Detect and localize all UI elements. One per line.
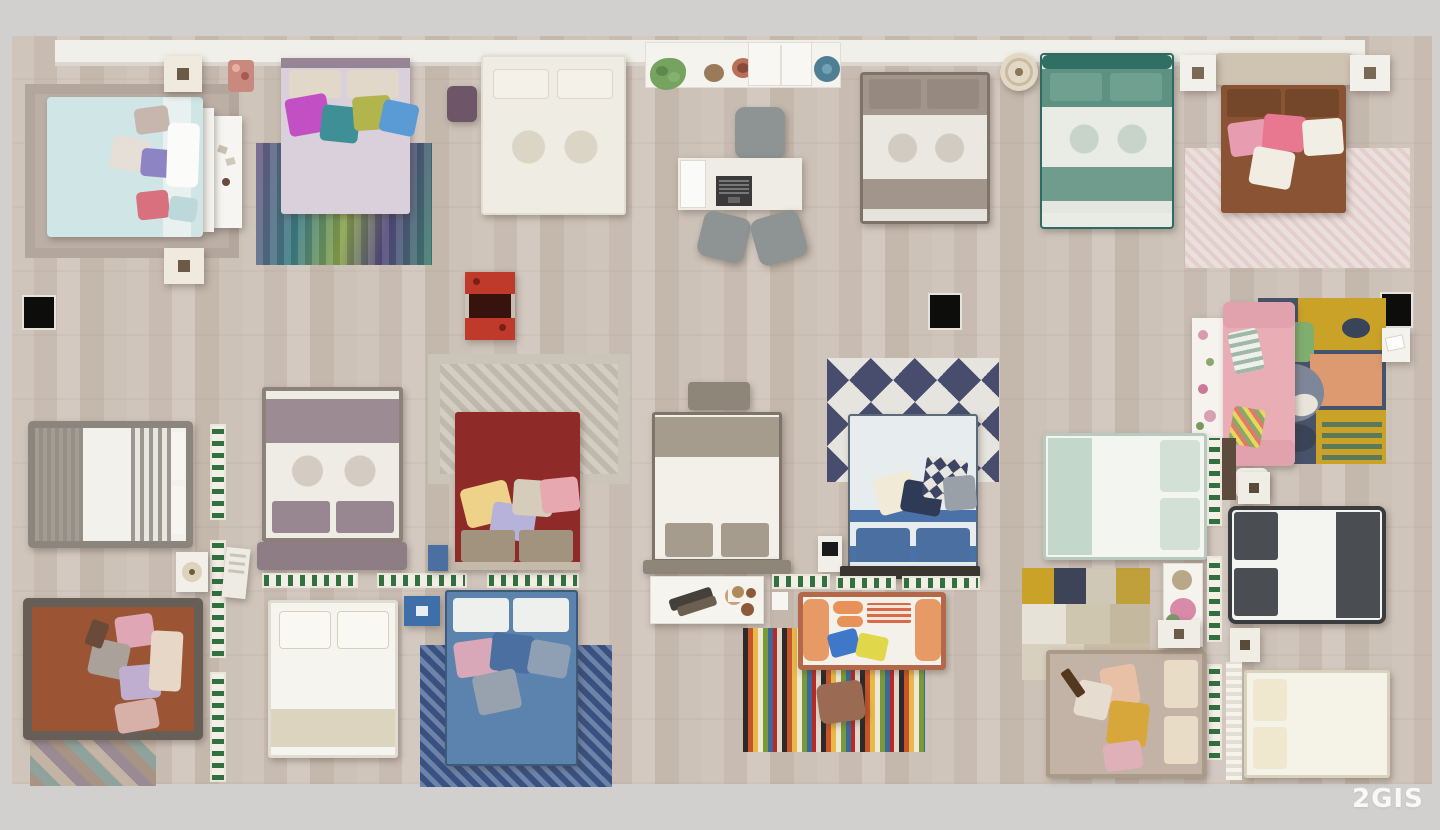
fold <box>131 428 171 541</box>
pillow <box>855 632 889 662</box>
flower <box>1204 410 1216 422</box>
wood-strip <box>1222 438 1236 500</box>
planter-strip-h <box>487 573 579 588</box>
headboard-strip <box>281 58 410 68</box>
pillow <box>1253 679 1287 721</box>
duvet-pattern <box>1050 111 1164 167</box>
planter-strip-h <box>772 574 830 589</box>
headboard-tufted <box>688 382 750 410</box>
bed-cream-corner <box>1244 670 1390 778</box>
patch <box>1116 568 1150 604</box>
pillow <box>1285 89 1339 117</box>
patch <box>1110 604 1150 644</box>
knob <box>1249 483 1259 493</box>
slat <box>228 569 244 574</box>
nightstand <box>164 248 204 284</box>
pillow <box>453 598 509 632</box>
nightstand <box>1350 55 1390 91</box>
pillow <box>519 530 573 562</box>
bed-mauve <box>262 387 403 542</box>
pillow <box>378 99 420 138</box>
cushion-roll <box>837 616 863 627</box>
nightstand <box>176 552 208 592</box>
divider <box>780 45 782 85</box>
stripes <box>1322 416 1382 460</box>
pillow <box>148 630 183 692</box>
bed-mint <box>1043 433 1207 560</box>
duvet-gray <box>35 428 83 541</box>
knob <box>1192 67 1204 79</box>
band-bottom <box>271 709 395 747</box>
knob <box>178 260 190 272</box>
pillow <box>557 69 613 99</box>
screen-floral <box>1192 318 1226 442</box>
fabric-stack <box>867 603 911 623</box>
bed-blue <box>445 590 578 766</box>
headboard-tufted <box>257 542 407 570</box>
pillow <box>166 122 200 187</box>
pillow <box>1253 727 1287 769</box>
pillow <box>1302 118 1344 157</box>
band-left <box>1048 438 1092 555</box>
bed-taupe-white <box>652 412 782 562</box>
pillow <box>1227 89 1281 117</box>
decor-chip <box>225 157 236 166</box>
decor-chip <box>217 145 228 155</box>
pillow <box>272 501 330 533</box>
decor-flowers <box>228 60 254 92</box>
bench <box>643 560 791 574</box>
keyboard <box>719 180 749 194</box>
foot-strip <box>1042 201 1172 213</box>
knob <box>1174 629 1184 639</box>
magazine <box>1385 334 1406 351</box>
pillow <box>136 189 171 220</box>
pillow <box>171 432 185 480</box>
planter-strip-h <box>377 573 467 588</box>
slat <box>230 553 246 558</box>
pillow <box>337 611 389 649</box>
pillow <box>1102 739 1144 772</box>
bird <box>1342 318 1370 338</box>
planter-strip-h <box>262 573 358 588</box>
patch <box>1022 568 1054 604</box>
pillow <box>513 598 569 632</box>
nightstand-display <box>818 536 842 572</box>
arm <box>803 599 829 661</box>
duvet-pattern <box>491 107 616 187</box>
dot <box>473 278 480 285</box>
pillow <box>916 528 970 562</box>
nightstand-blue <box>404 596 440 626</box>
band-bottom <box>1042 167 1172 201</box>
dot <box>499 324 506 331</box>
band-top <box>266 399 399 443</box>
flower <box>1198 330 1208 340</box>
bed-brown <box>1221 85 1346 213</box>
side-table <box>1382 328 1410 362</box>
flower <box>241 72 249 80</box>
planter-strip <box>210 540 226 658</box>
shelf-bottom <box>465 318 515 340</box>
headboard-ornate <box>1214 53 1354 85</box>
screen <box>822 542 838 556</box>
bed-taupe <box>860 72 990 224</box>
pillow <box>1160 498 1200 550</box>
pillow <box>171 486 185 534</box>
door-marker <box>22 295 56 330</box>
watermark-2gis: 2GIS <box>1352 784 1440 814</box>
decor-dot <box>222 178 230 186</box>
duvet-pattern <box>869 119 981 177</box>
slat <box>229 561 245 566</box>
bowl <box>704 64 724 82</box>
pillow <box>167 195 198 223</box>
pillow <box>1164 660 1198 708</box>
cushion-roll <box>833 601 863 614</box>
foot-frame <box>455 562 580 570</box>
leaf <box>1206 358 1214 366</box>
pillow <box>539 476 580 514</box>
bed-gray <box>28 421 193 548</box>
patch <box>1054 568 1086 604</box>
leaf <box>1196 422 1204 430</box>
shelf-cavity <box>469 294 511 318</box>
nightstand <box>1180 55 1216 91</box>
pillow <box>1164 716 1198 764</box>
knob <box>189 569 195 575</box>
disc <box>746 588 756 598</box>
sofa-orange <box>798 592 946 670</box>
rug-harlequin <box>30 738 156 786</box>
planter-strip <box>1207 664 1222 760</box>
office-stool <box>735 107 785 159</box>
shelf-cabinet <box>748 42 812 86</box>
pillow <box>1110 73 1162 101</box>
headboard-panel <box>202 108 214 232</box>
foot-strip <box>863 209 987 221</box>
bed-white <box>268 600 398 758</box>
patch <box>1022 604 1066 644</box>
flower <box>232 64 240 72</box>
pillow <box>943 475 978 512</box>
nightstand <box>164 56 202 92</box>
bed-lavender <box>281 58 410 214</box>
planter-strip-h <box>902 576 980 590</box>
nightstand <box>1158 620 1200 648</box>
pouf <box>447 86 477 122</box>
pillow <box>526 639 571 679</box>
pouf-round <box>1000 53 1038 91</box>
pillow <box>665 523 713 557</box>
bed-blue-white <box>848 414 978 570</box>
tray <box>1172 570 1192 590</box>
flower <box>1198 384 1208 394</box>
pillow <box>336 501 394 533</box>
door-marker <box>928 293 962 330</box>
band-top <box>655 417 779 457</box>
pillow <box>1050 73 1102 101</box>
box-small <box>772 592 788 610</box>
pillow <box>133 105 170 135</box>
pillow <box>114 698 161 735</box>
pillow <box>347 70 399 98</box>
pillow-dark <box>1234 568 1278 616</box>
nightstand <box>1238 472 1270 504</box>
arm <box>915 599 941 661</box>
disc <box>732 586 744 598</box>
planter-strip <box>1207 556 1222 642</box>
laptop <box>716 176 752 206</box>
tray <box>741 603 754 616</box>
bed-maroon <box>455 412 580 570</box>
planter-strip <box>1207 436 1222 526</box>
pillow-dark <box>1234 512 1278 560</box>
pillow <box>493 69 549 99</box>
pillow <box>471 668 522 716</box>
bed-greige <box>1046 650 1206 778</box>
knob <box>1364 67 1376 79</box>
bed-charcoal <box>1228 506 1386 624</box>
pillow <box>856 528 910 562</box>
patch <box>1086 568 1116 604</box>
showroom-floorplan-photo: 2GIS <box>0 0 1440 830</box>
bed-rust <box>23 598 203 740</box>
bed-cream <box>481 55 626 215</box>
runner-fluffy <box>1226 662 1242 780</box>
nightstand-blue <box>428 545 448 571</box>
band-bottom <box>863 179 987 209</box>
shelf-red <box>465 272 515 340</box>
desk-cabinet <box>680 160 706 208</box>
planter-strip <box>210 672 226 782</box>
leaf <box>656 66 668 76</box>
planter-strip-h <box>836 576 896 590</box>
bed-lightblue <box>47 97 203 237</box>
label <box>416 606 428 616</box>
pillow <box>1160 440 1200 492</box>
leaf <box>668 72 680 82</box>
arm <box>1223 302 1295 328</box>
decor-disc <box>814 56 840 82</box>
throw-brown <box>815 679 866 725</box>
pillow <box>721 523 769 557</box>
nightstand <box>1230 628 1260 662</box>
band-right <box>1336 512 1380 618</box>
display-table <box>212 116 242 228</box>
pillow <box>461 530 515 562</box>
headboard-roll <box>1042 55 1172 69</box>
bed-teal <box>1040 53 1174 229</box>
patch <box>1066 604 1110 644</box>
trackpad <box>728 197 740 203</box>
pillow <box>927 79 979 109</box>
pillow <box>869 79 921 109</box>
knob <box>177 68 189 80</box>
pillow <box>1262 113 1307 153</box>
pillow <box>279 611 331 649</box>
tray-floor <box>728 582 762 602</box>
planter-strip <box>210 424 226 520</box>
pillow <box>1227 327 1265 374</box>
pillow <box>1248 146 1296 191</box>
knob <box>1240 640 1250 650</box>
duvet-pattern <box>270 443 395 499</box>
